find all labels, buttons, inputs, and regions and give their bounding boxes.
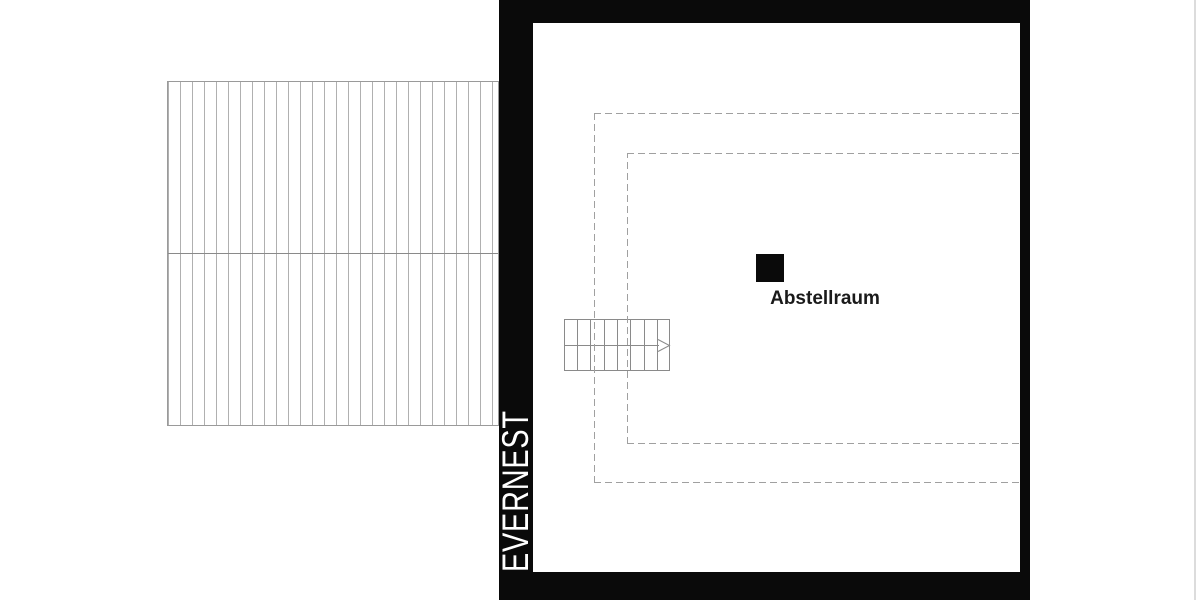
roof-hatch-panel xyxy=(167,81,499,426)
dashed-outline-outer-left xyxy=(594,113,595,483)
dashed-outline-outer-bottom xyxy=(594,482,1020,483)
dashed-outline-inner-left xyxy=(627,153,628,444)
page-edge-line xyxy=(1194,0,1196,600)
dashed-outline-outer-top xyxy=(594,113,1020,114)
room-marker-square xyxy=(756,254,784,282)
exterior-wall: EVERNEST xyxy=(499,0,1030,600)
room-label: Abstellraum xyxy=(745,288,905,310)
floor-area: Abstellraum xyxy=(533,23,1020,572)
brand-logo-vertical: EVERNEST xyxy=(499,410,533,572)
staircase xyxy=(564,319,671,371)
dashed-outline-inner-top xyxy=(627,153,1020,154)
roof-ridge-line xyxy=(168,253,498,254)
floor-plan-page: EVERNEST xyxy=(0,0,1200,600)
dashed-outline-inner-bottom xyxy=(627,443,1020,444)
